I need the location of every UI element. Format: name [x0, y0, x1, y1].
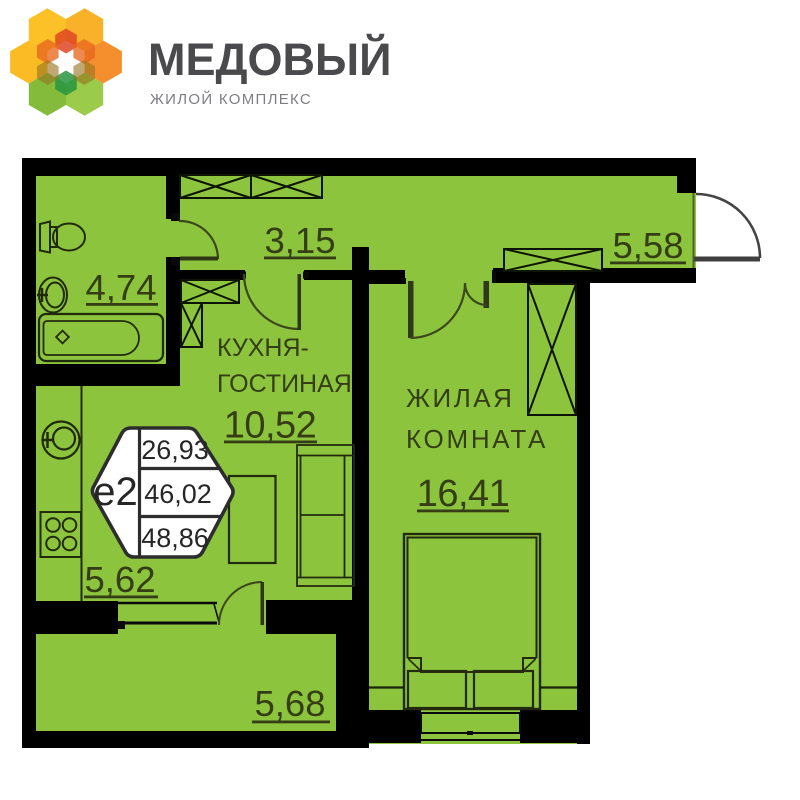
svg-text:26,93: 26,93 [141, 435, 209, 465]
svg-text:16,41: 16,41 [417, 473, 510, 515]
svg-text:МЕДОВЫЙ: МЕДОВЫЙ [148, 34, 391, 85]
svg-text:48,86: 48,86 [141, 523, 209, 553]
svg-text:10,52: 10,52 [224, 405, 317, 447]
svg-text:5,68: 5,68 [254, 683, 325, 724]
svg-text:ЖИЛАЯ: ЖИЛАЯ [406, 383, 514, 413]
svg-text:5,58: 5,58 [612, 225, 683, 266]
svg-text:3,15: 3,15 [264, 220, 335, 261]
svg-text:ЖИЛОЙ КОМПЛЕКС: ЖИЛОЙ КОМПЛЕКС [150, 90, 312, 108]
svg-text:4,74: 4,74 [85, 267, 156, 308]
svg-text:46,02: 46,02 [144, 479, 212, 509]
svg-text:е2: е2 [93, 470, 138, 514]
svg-text:5,62: 5,62 [84, 559, 155, 600]
svg-text:КОМНАТА: КОМНАТА [406, 424, 548, 454]
svg-text:ГОСТИНАЯ: ГОСТИНАЯ [217, 370, 352, 398]
svg-text:КУХНЯ-: КУХНЯ- [217, 334, 309, 362]
